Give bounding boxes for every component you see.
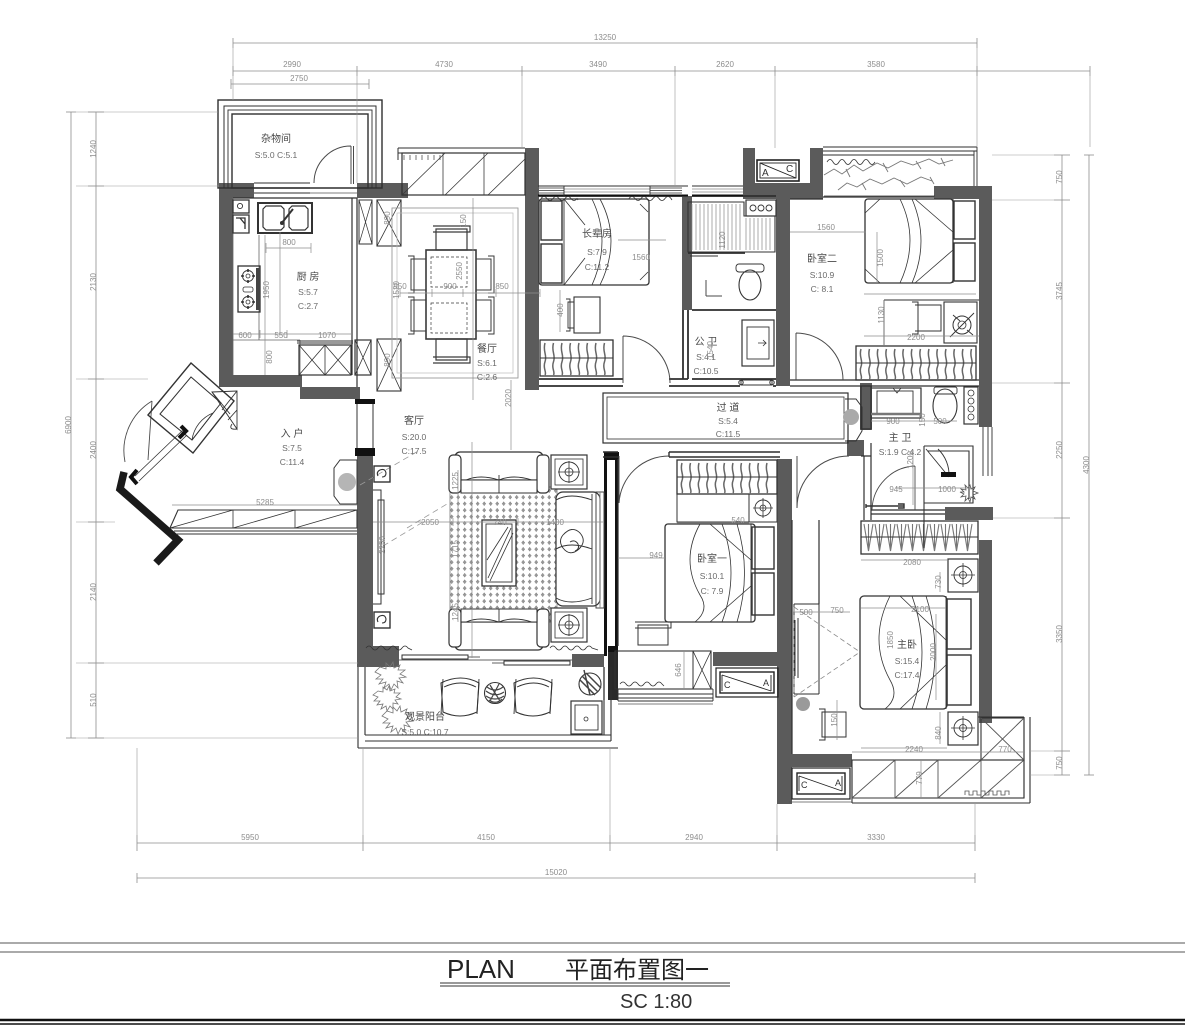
svg-text:1070: 1070 bbox=[318, 331, 336, 340]
svg-text:750: 750 bbox=[1055, 756, 1064, 770]
svg-text:S:10.1: S:10.1 bbox=[700, 571, 725, 581]
svg-text:3580: 3580 bbox=[867, 60, 885, 69]
svg-text:3745: 3745 bbox=[1055, 282, 1064, 300]
svg-text:850: 850 bbox=[495, 282, 509, 291]
svg-text:5285: 5285 bbox=[256, 498, 274, 507]
svg-text:750: 750 bbox=[1055, 170, 1064, 184]
svg-text:800: 800 bbox=[265, 350, 274, 364]
svg-text:1560: 1560 bbox=[817, 223, 835, 232]
svg-text:510: 510 bbox=[89, 693, 98, 707]
svg-text:949: 949 bbox=[649, 551, 663, 560]
svg-text:770: 770 bbox=[998, 745, 1012, 754]
svg-text:厨 房: 厨 房 bbox=[297, 270, 320, 283]
svg-text:S:15.4: S:15.4 bbox=[895, 656, 920, 666]
svg-text:C:10.5: C:10.5 bbox=[693, 366, 718, 376]
svg-text:890: 890 bbox=[383, 211, 392, 225]
svg-text:C:11.2: C:11.2 bbox=[585, 262, 610, 272]
svg-text:15020: 15020 bbox=[545, 868, 568, 877]
svg-text:S:5.4: S:5.4 bbox=[718, 416, 738, 426]
svg-text:1850: 1850 bbox=[886, 631, 895, 649]
svg-text:主卧: 主卧 bbox=[897, 638, 917, 651]
svg-text:S:1.9 C:4.2: S:1.9 C:4.2 bbox=[879, 447, 922, 457]
svg-text:4730: 4730 bbox=[435, 60, 453, 69]
svg-text:1225: 1225 bbox=[451, 472, 460, 490]
svg-text:C: C bbox=[786, 164, 793, 175]
svg-text:S:10.9: S:10.9 bbox=[810, 270, 835, 280]
svg-text:S:5.0 C:5.1: S:5.0 C:5.1 bbox=[255, 150, 298, 160]
svg-text:A: A bbox=[763, 678, 769, 688]
svg-text:入 户: 入 户 bbox=[281, 427, 304, 440]
svg-text:1245: 1245 bbox=[451, 603, 460, 621]
svg-text:C:2.7: C:2.7 bbox=[298, 301, 319, 311]
svg-text:730: 730 bbox=[934, 575, 943, 589]
svg-text:1540: 1540 bbox=[706, 341, 715, 359]
svg-text:550: 550 bbox=[274, 331, 288, 340]
svg-text:840: 840 bbox=[934, 726, 943, 740]
svg-text:945: 945 bbox=[889, 485, 903, 494]
svg-text:2250: 2250 bbox=[378, 536, 387, 554]
svg-text:C: C bbox=[801, 780, 808, 790]
svg-text:900: 900 bbox=[886, 417, 900, 426]
svg-text:150: 150 bbox=[459, 214, 468, 228]
svg-text:1400: 1400 bbox=[546, 518, 564, 527]
svg-text:1560: 1560 bbox=[632, 253, 650, 262]
svg-text:卧室二: 卧室二 bbox=[807, 252, 837, 265]
svg-text:过 道: 过 道 bbox=[717, 401, 740, 414]
svg-text:779: 779 bbox=[915, 771, 924, 785]
svg-text:900: 900 bbox=[443, 282, 457, 291]
svg-text:540: 540 bbox=[731, 516, 745, 525]
svg-text:S:7.5: S:7.5 bbox=[282, 443, 302, 453]
svg-text:400: 400 bbox=[556, 303, 565, 317]
svg-text:1000: 1000 bbox=[938, 485, 956, 494]
svg-text:5950: 5950 bbox=[241, 833, 259, 842]
svg-text:客厅: 客厅 bbox=[404, 414, 424, 427]
svg-text:S:5.7: S:5.7 bbox=[298, 287, 318, 297]
svg-text:A: A bbox=[835, 778, 841, 788]
svg-text:观景阳台: 观景阳台 bbox=[405, 710, 445, 723]
svg-text:SC 1:80: SC 1:80 bbox=[620, 991, 692, 1013]
svg-text:890: 890 bbox=[383, 353, 392, 367]
svg-text:S:5.0 C:10.7: S:5.0 C:10.7 bbox=[401, 727, 449, 737]
svg-text:1715: 1715 bbox=[451, 540, 460, 558]
svg-text:C:2.6: C:2.6 bbox=[477, 372, 498, 382]
svg-text:3490: 3490 bbox=[589, 60, 607, 69]
svg-text:150: 150 bbox=[918, 413, 927, 427]
svg-text:3330: 3330 bbox=[867, 833, 885, 842]
svg-text:2080: 2080 bbox=[903, 558, 921, 567]
svg-text:600: 600 bbox=[238, 331, 252, 340]
svg-text:主 卫: 主 卫 bbox=[889, 432, 912, 444]
svg-text:3350: 3350 bbox=[1055, 625, 1064, 643]
svg-text:6900: 6900 bbox=[64, 416, 73, 434]
svg-text:S:7.9: S:7.9 bbox=[587, 247, 607, 257]
svg-text:C: 8.1: C: 8.1 bbox=[811, 284, 834, 294]
svg-text:2750: 2750 bbox=[290, 74, 308, 83]
svg-text:C:17.5: C:17.5 bbox=[401, 446, 426, 456]
svg-text:2400: 2400 bbox=[89, 441, 98, 459]
svg-text:2020: 2020 bbox=[504, 389, 513, 407]
svg-text:4300: 4300 bbox=[1082, 456, 1091, 474]
svg-text:800: 800 bbox=[282, 238, 296, 247]
svg-text:1950: 1950 bbox=[262, 281, 271, 299]
svg-text:S:6.1: S:6.1 bbox=[477, 358, 497, 368]
svg-text:2100: 2100 bbox=[911, 605, 929, 614]
svg-text:2940: 2940 bbox=[685, 833, 703, 842]
svg-text:150: 150 bbox=[830, 713, 839, 727]
svg-text:500: 500 bbox=[799, 608, 813, 617]
svg-text:1240: 1240 bbox=[89, 140, 98, 158]
svg-text:2140: 2140 bbox=[89, 583, 98, 601]
svg-text:C:11.5: C:11.5 bbox=[716, 429, 741, 439]
svg-text:2000: 2000 bbox=[929, 643, 938, 661]
svg-text:A: A bbox=[762, 168, 769, 179]
svg-text:1500: 1500 bbox=[876, 249, 885, 267]
svg-text:740: 740 bbox=[493, 518, 507, 527]
svg-text:2200: 2200 bbox=[907, 333, 925, 342]
svg-text:2240: 2240 bbox=[905, 745, 923, 754]
svg-text:平面布置图一: 平面布置图一 bbox=[565, 957, 709, 984]
svg-text:1120: 1120 bbox=[718, 231, 727, 249]
svg-text:C: 7.9: C: 7.9 bbox=[701, 586, 724, 596]
svg-text:750: 750 bbox=[830, 606, 844, 615]
svg-text:PLAN: PLAN bbox=[447, 954, 515, 984]
svg-text:2130: 2130 bbox=[89, 273, 98, 291]
svg-text:2050: 2050 bbox=[421, 518, 439, 527]
svg-text:C: C bbox=[724, 680, 731, 690]
svg-text:1520: 1520 bbox=[392, 281, 401, 299]
svg-text:2620: 2620 bbox=[716, 60, 734, 69]
svg-text:C:11.4: C:11.4 bbox=[280, 457, 305, 467]
svg-text:杂物间: 杂物间 bbox=[261, 132, 291, 145]
svg-text:646: 646 bbox=[674, 663, 683, 677]
svg-text:2550: 2550 bbox=[455, 262, 464, 280]
svg-text:13250: 13250 bbox=[594, 33, 617, 42]
svg-text:长辈房: 长辈房 bbox=[582, 227, 612, 240]
svg-text:1130: 1130 bbox=[877, 306, 886, 324]
svg-text:4150: 4150 bbox=[477, 833, 495, 842]
svg-text:C:17.4: C:17.4 bbox=[894, 670, 919, 680]
svg-text:2250: 2250 bbox=[1055, 441, 1064, 459]
svg-text:1200: 1200 bbox=[906, 451, 915, 469]
svg-text:500: 500 bbox=[933, 417, 947, 426]
svg-text:餐厅: 餐厅 bbox=[477, 342, 497, 355]
svg-text:2990: 2990 bbox=[283, 60, 301, 69]
svg-text:卧室一: 卧室一 bbox=[697, 552, 727, 565]
svg-text:S:20.0: S:20.0 bbox=[402, 432, 427, 442]
